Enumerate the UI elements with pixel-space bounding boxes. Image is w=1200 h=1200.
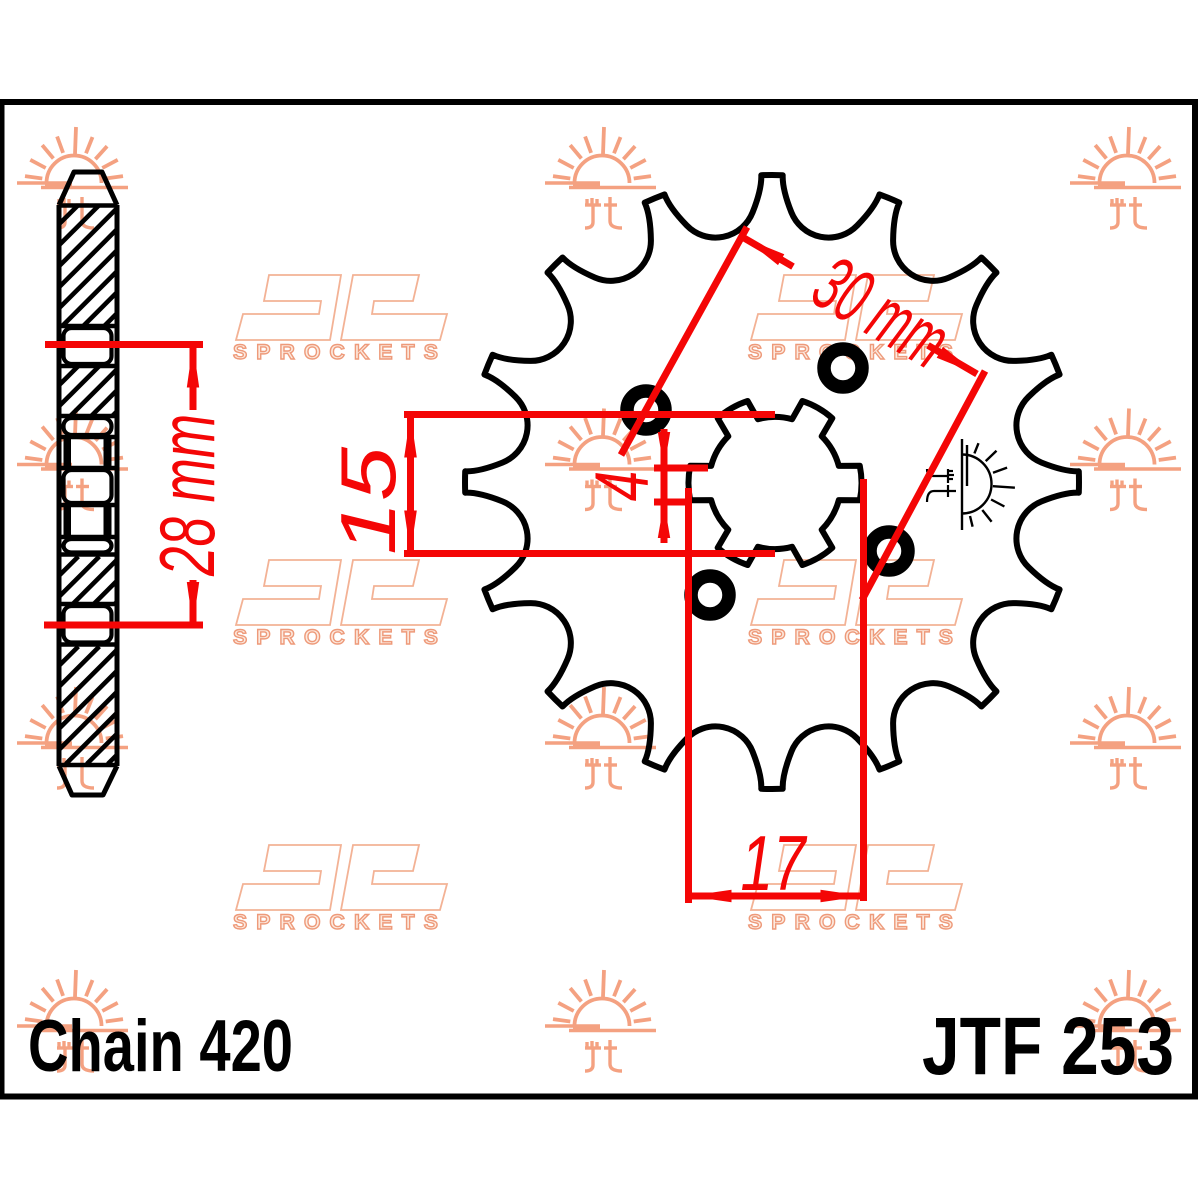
svg-text:17: 17 [740,820,807,907]
svg-text:28 mm: 28 mm [143,414,231,577]
svg-text:4: 4 [580,471,665,501]
svg-text:Chain 420: Chain 420 [28,1006,293,1087]
svg-text:JTF 253: JTF 253 [922,1001,1174,1092]
svg-text:15: 15 [324,446,412,555]
